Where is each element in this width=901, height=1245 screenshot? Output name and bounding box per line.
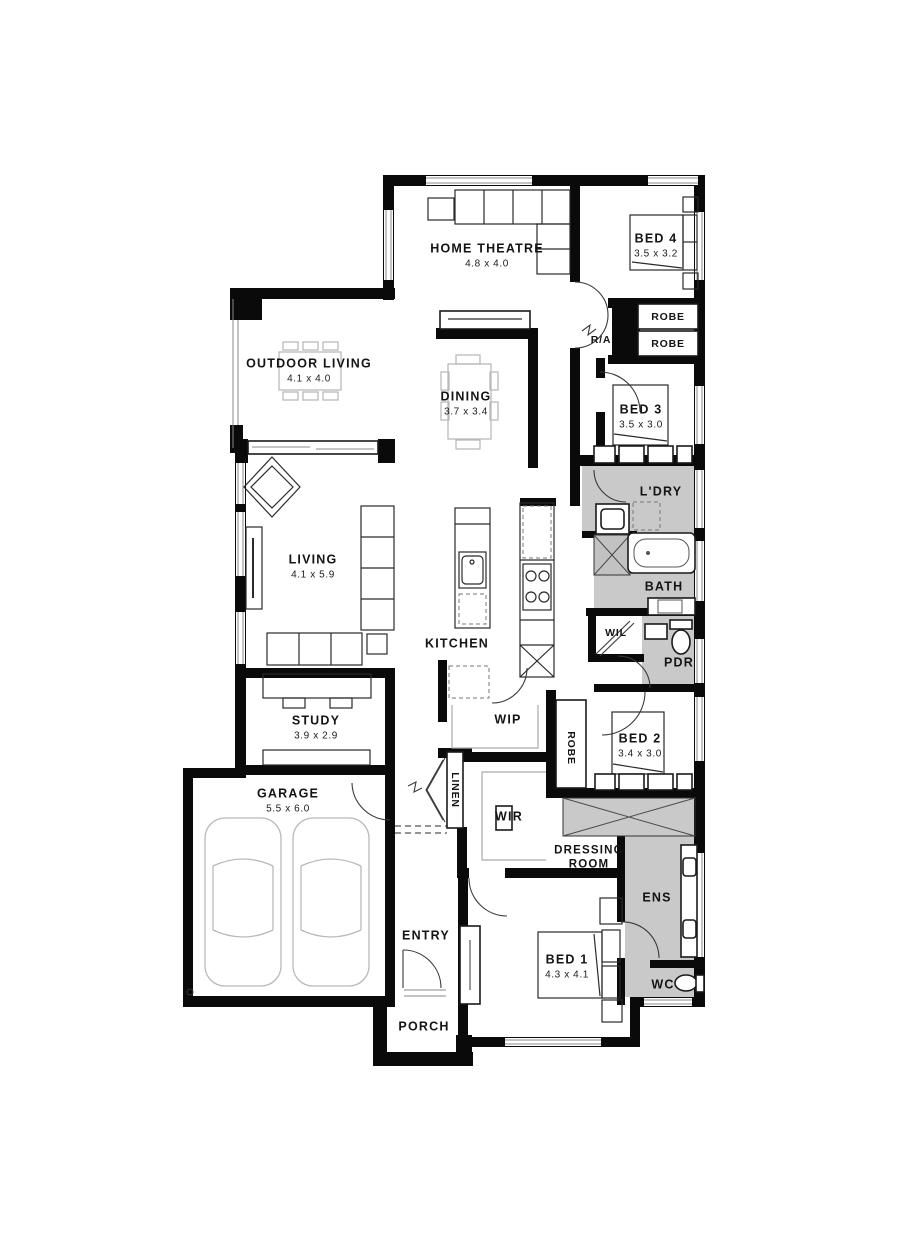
room-label-laundry: L'DRY	[640, 485, 683, 500]
room-dims: 5.5 x 6.0	[257, 803, 319, 815]
room-name: BED 3	[620, 403, 663, 417]
room-dims: 4.1 x 4.0	[246, 373, 372, 385]
room-label-kitchen: KITCHEN	[425, 637, 489, 652]
room-label-wil: WIL	[605, 627, 627, 639]
label-linen: LINEN	[449, 772, 461, 808]
room-name-line1: DRESSING	[554, 844, 624, 856]
label-robe-bed2: ROBE	[565, 731, 577, 765]
room-name: LIVING	[289, 553, 338, 567]
room-dims: 3.4 x 3.0	[618, 748, 662, 760]
room-label-wip: WIP	[494, 713, 521, 728]
room-name: BED 4	[635, 232, 678, 246]
room-label-dining: DINING 3.7 x 3.4	[441, 390, 492, 419]
room-name: BED 2	[619, 732, 662, 746]
room-name: HOME THEATRE	[430, 242, 543, 256]
garage-contents	[187, 818, 447, 995]
room-name: STUDY	[292, 714, 340, 728]
room-dims: 4.8 x 4.0	[430, 258, 543, 270]
room-dims: 3.7 x 3.4	[441, 406, 492, 418]
room-label-living: LIVING 4.1 x 5.9	[289, 553, 338, 582]
room-label-garage: GARAGE 5.5 x 6.0	[257, 787, 319, 816]
room-label-ens: ENS	[642, 891, 671, 906]
room-label-bath: BATH	[645, 580, 684, 595]
label-return-air: R/A	[591, 334, 611, 346]
room-name: OUTDOOR LIVING	[246, 357, 372, 371]
room-label-bed1: BED 1 4.3 x 4.1	[545, 953, 589, 982]
label-robe-bottom: ROBE	[651, 338, 685, 350]
floor-plan: HOME THEATRE 4.8 x 4.0 BED 4 3.5 x 3.2 R…	[0, 0, 901, 1245]
label-robe-top: ROBE	[651, 311, 685, 323]
room-label-outdoor-living: OUTDOOR LIVING 4.1 x 4.0	[246, 357, 372, 386]
room-name: BED 1	[546, 953, 589, 967]
room-label-wc: WC	[651, 978, 674, 993]
floor-plan-drawing	[0, 0, 901, 1245]
kitchen-fixtures	[449, 503, 554, 698]
room-label-porch: PORCH	[398, 1020, 449, 1035]
room-label-entry: ENTRY	[402, 929, 450, 944]
room-label-bed2: BED 2 3.4 x 3.0	[618, 732, 662, 761]
room-dims: 4.3 x 4.1	[545, 969, 589, 981]
room-label-bed4: BED 4 3.5 x 3.2	[634, 232, 678, 261]
room-label-home-theatre: HOME THEATRE 4.8 x 4.0	[430, 242, 543, 271]
room-dims: 4.1 x 5.9	[289, 569, 338, 581]
room-name: DINING	[441, 390, 492, 404]
room-name: GARAGE	[257, 787, 319, 801]
room-dims: 3.5 x 3.2	[634, 248, 678, 260]
room-label-study: STUDY 3.9 x 2.9	[292, 714, 340, 743]
room-label-wir: WIR	[495, 810, 523, 825]
room-label-bed3: BED 3 3.5 x 3.0	[619, 403, 663, 432]
room-name-line2: ROOM	[569, 858, 610, 870]
room-label-dressing: DRESSING ROOM	[554, 844, 624, 871]
room-dims: 3.9 x 2.9	[292, 730, 340, 742]
room-label-pdr: PDR	[664, 656, 694, 671]
room-dims: 3.5 x 3.0	[619, 419, 663, 431]
